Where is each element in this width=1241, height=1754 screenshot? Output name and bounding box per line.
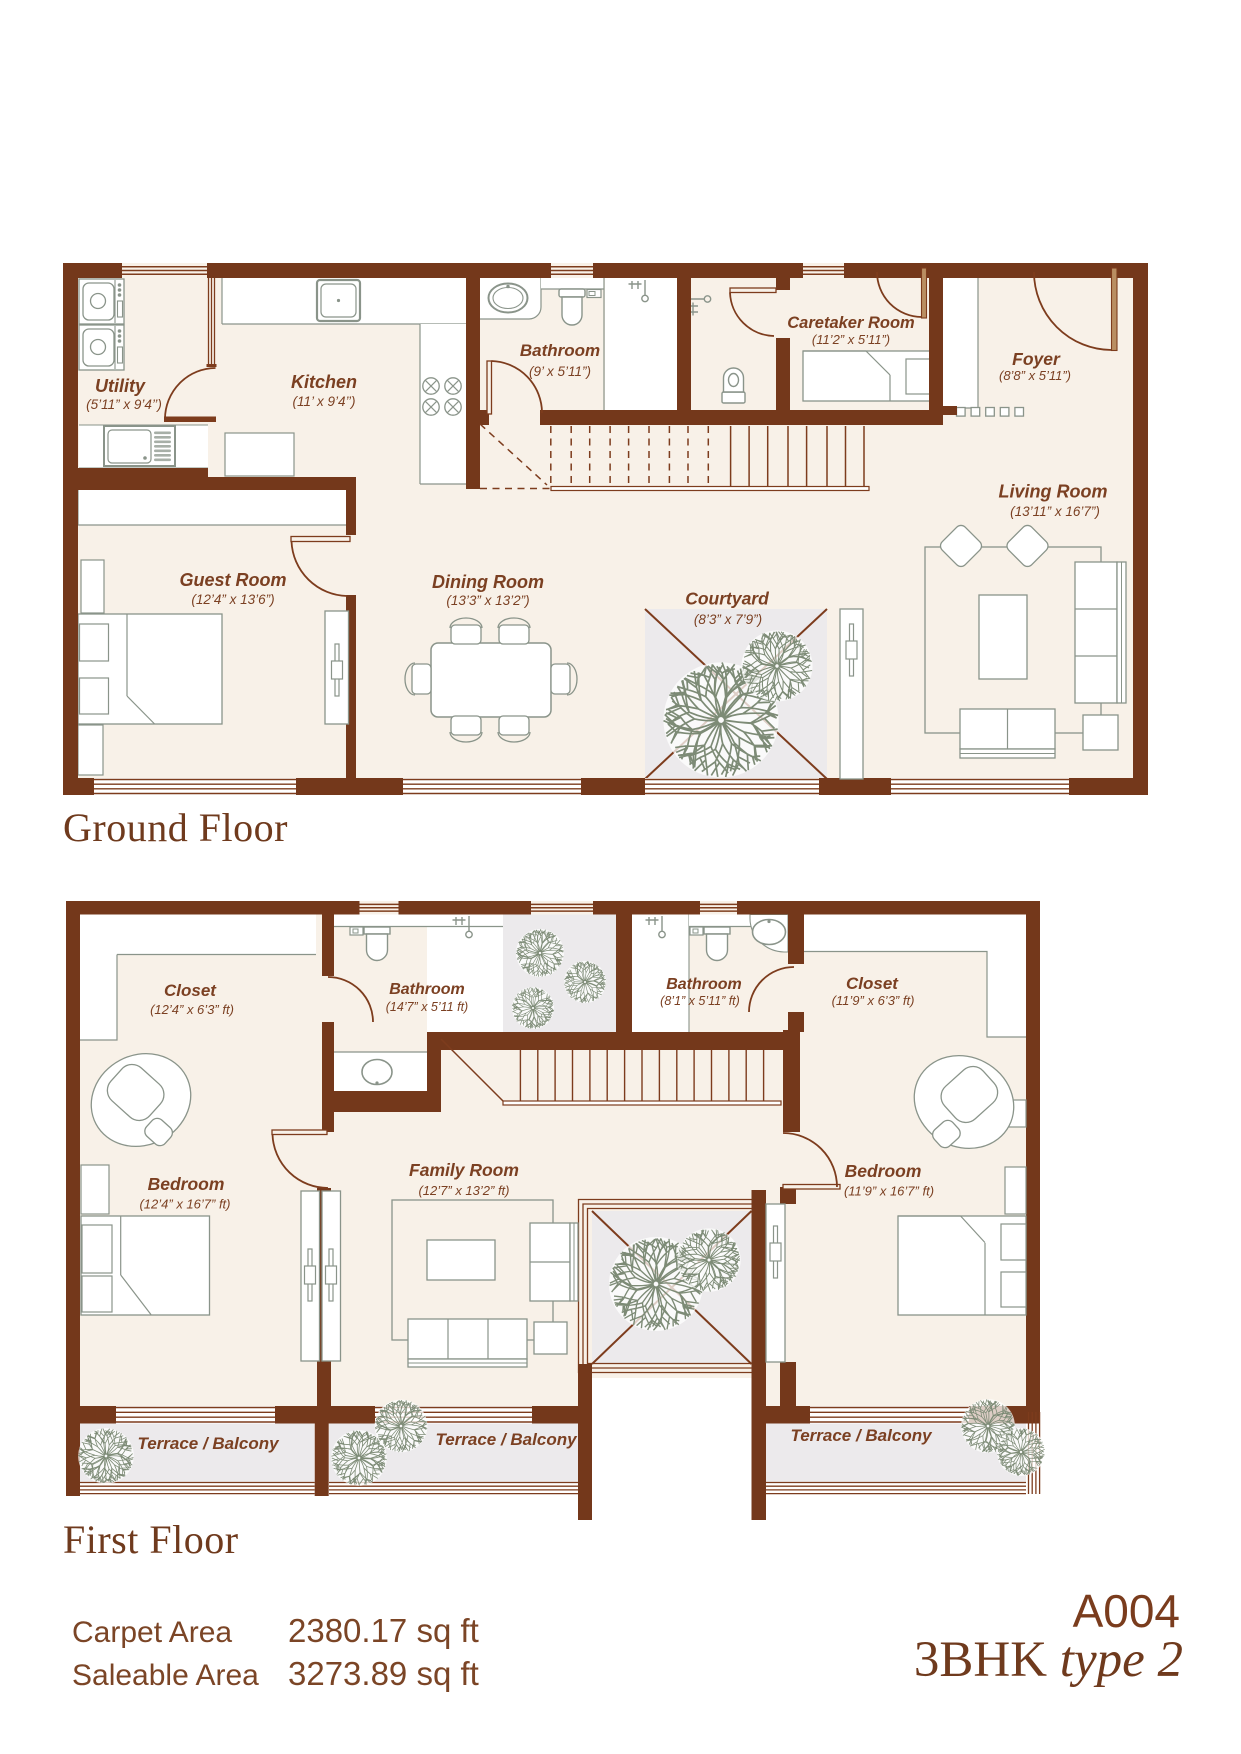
svg-text:Living Room: Living Room (999, 482, 1108, 502)
svg-text:(13’11” x 16’7”): (13’11” x 16’7”) (1010, 504, 1100, 519)
svg-text:Terrace / Balcony: Terrace / Balcony (137, 1434, 280, 1453)
svg-text:Bedroom: Bedroom (148, 1174, 225, 1194)
svg-text:Dining Room: Dining Room (432, 572, 544, 592)
svg-text:(12’7” x 13’2” ft): (12’7” x 13’2” ft) (418, 1183, 509, 1198)
svg-text:A004: A004 (1073, 1585, 1180, 1637)
svg-text:Guest Room: Guest Room (179, 570, 286, 590)
svg-text:Bathroom: Bathroom (666, 976, 742, 993)
svg-text:Bedroom: Bedroom (845, 1161, 922, 1181)
svg-text:Closet: Closet (846, 974, 899, 993)
svg-text:(13’3” x 13’2”): (13’3” x 13’2”) (446, 593, 529, 608)
svg-text:Closet: Closet (164, 981, 217, 1000)
svg-text:(14’7” x 5’11 ft): (14’7” x 5’11 ft) (386, 1000, 468, 1014)
svg-text:Family Room: Family Room (409, 1160, 519, 1180)
svg-text:Kitchen: Kitchen (291, 372, 357, 392)
svg-text:Courtyard: Courtyard (685, 589, 769, 609)
svg-text:(8’3” x 7’9”): (8’3” x 7’9”) (694, 612, 762, 627)
svg-text:(8’8” x 5’11”): (8’8” x 5’11”) (999, 368, 1071, 383)
svg-text:Ground Floor: Ground Floor (63, 805, 288, 850)
svg-text:(5’11” x 9’4’’): (5’11” x 9’4’’) (86, 397, 162, 412)
svg-text:Bathroom: Bathroom (389, 981, 465, 998)
svg-text:2380.17 sq ft: 2380.17 sq ft (288, 1612, 479, 1649)
svg-text:Utility: Utility (95, 376, 146, 396)
svg-text:(12’4” x 16’7” ft): (12’4” x 16’7” ft) (139, 1197, 230, 1212)
svg-text:Bathroom: Bathroom (520, 341, 600, 360)
svg-text:(11’ x 9’4’’): (11’ x 9’4’’) (292, 394, 355, 409)
svg-text:(9’ x 5’11”): (9’ x 5’11”) (529, 364, 591, 379)
svg-text:Saleable Area: Saleable Area (72, 1659, 259, 1692)
svg-text:3273.89 sq ft: 3273.89 sq ft (288, 1655, 479, 1692)
svg-text:(11’9” x 6’3” ft): (11’9” x 6’3” ft) (832, 993, 915, 1008)
svg-text:Terrace / Balcony: Terrace / Balcony (790, 1426, 933, 1445)
svg-text:(11’9” x 16’7” ft): (11’9” x 16’7” ft) (844, 1184, 934, 1199)
svg-text:3BHK type 2: 3BHK type 2 (914, 1632, 1183, 1688)
svg-text:Carpet Area: Carpet Area (72, 1616, 232, 1649)
svg-text:Terrace / Balcony: Terrace / Balcony (435, 1430, 578, 1449)
svg-text:First Floor: First Floor (63, 1517, 239, 1562)
svg-text:(12’4” x 13’6”): (12’4” x 13’6”) (191, 592, 274, 607)
svg-text:(12’4” x 6’3” ft): (12’4” x 6’3” ft) (150, 1002, 234, 1017)
svg-text:(8’1” x 5’11” ft): (8’1” x 5’11” ft) (660, 994, 740, 1008)
svg-text:Foyer: Foyer (1012, 349, 1061, 369)
svg-text:(11’2” x 5’11”): (11’2” x 5’11”) (812, 332, 890, 347)
svg-text:Caretaker Room: Caretaker Room (787, 314, 914, 332)
